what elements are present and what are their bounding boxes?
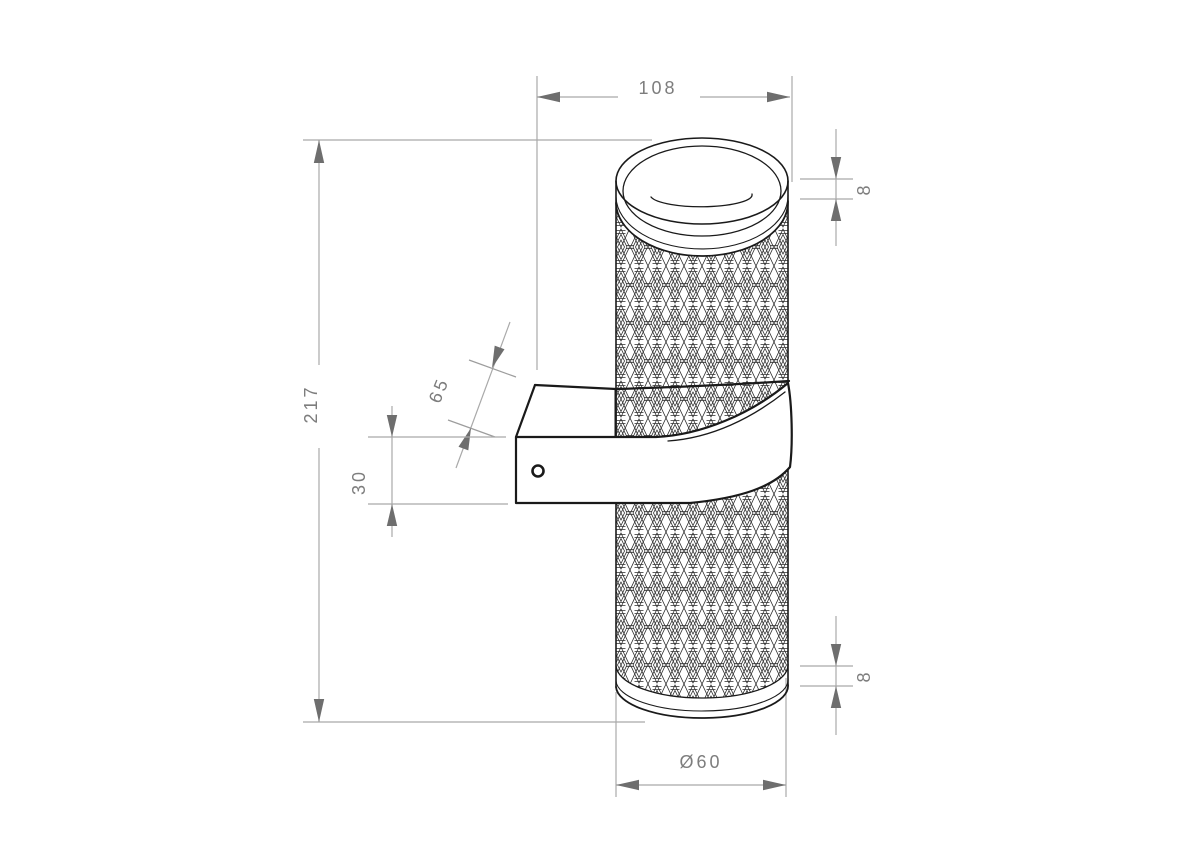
dim-label-overall-depth: 108 [638, 78, 677, 98]
lamp-dimension-drawing: 108 217 65 30 8 [0, 0, 1200, 848]
arrowhead-up [314, 140, 324, 163]
dimension-top-rim: 8 [800, 129, 874, 246]
arrowhead-upper [492, 346, 505, 368]
dim-label-bracket-reach: 65 [425, 374, 453, 406]
dim-label-body-diameter: Ø60 [679, 752, 722, 772]
technical-drawing-canvas: 108 217 65 30 8 [0, 0, 1200, 848]
dim-label-overall-height: 217 [301, 384, 321, 423]
arrowhead-right [767, 92, 790, 102]
arrowhead-left [537, 92, 560, 102]
arrowhead-left [616, 780, 639, 790]
arrowhead-down [831, 157, 841, 179]
oblique-tick [469, 360, 516, 377]
arrowhead-lower [459, 428, 472, 450]
arrowhead-down [387, 415, 397, 437]
bracket-top-face [516, 385, 615, 437]
arrowhead-up [831, 199, 841, 221]
arrowhead-up [387, 504, 397, 526]
oblique-tick [448, 420, 495, 437]
dim-label-top-rim: 8 [854, 182, 874, 195]
dim-label-bracket-thickness: 30 [349, 469, 369, 495]
arrowhead-up [831, 686, 841, 708]
dimension-bottom-rim: 8 [800, 616, 874, 735]
top-rim-outer-ellipse [616, 138, 788, 224]
inner-recess-arc [651, 194, 752, 207]
dimension-bracket-thickness: 30 [349, 406, 508, 537]
arrowhead-right [763, 780, 786, 790]
arrowhead-down [314, 699, 324, 722]
top-rim-inner-ellipse [623, 146, 781, 236]
screw-hole [533, 466, 544, 477]
dimension-bracket-reach: 65 [425, 322, 516, 468]
arrowhead-down [831, 644, 841, 666]
dim-label-bottom-rim: 8 [854, 669, 874, 682]
